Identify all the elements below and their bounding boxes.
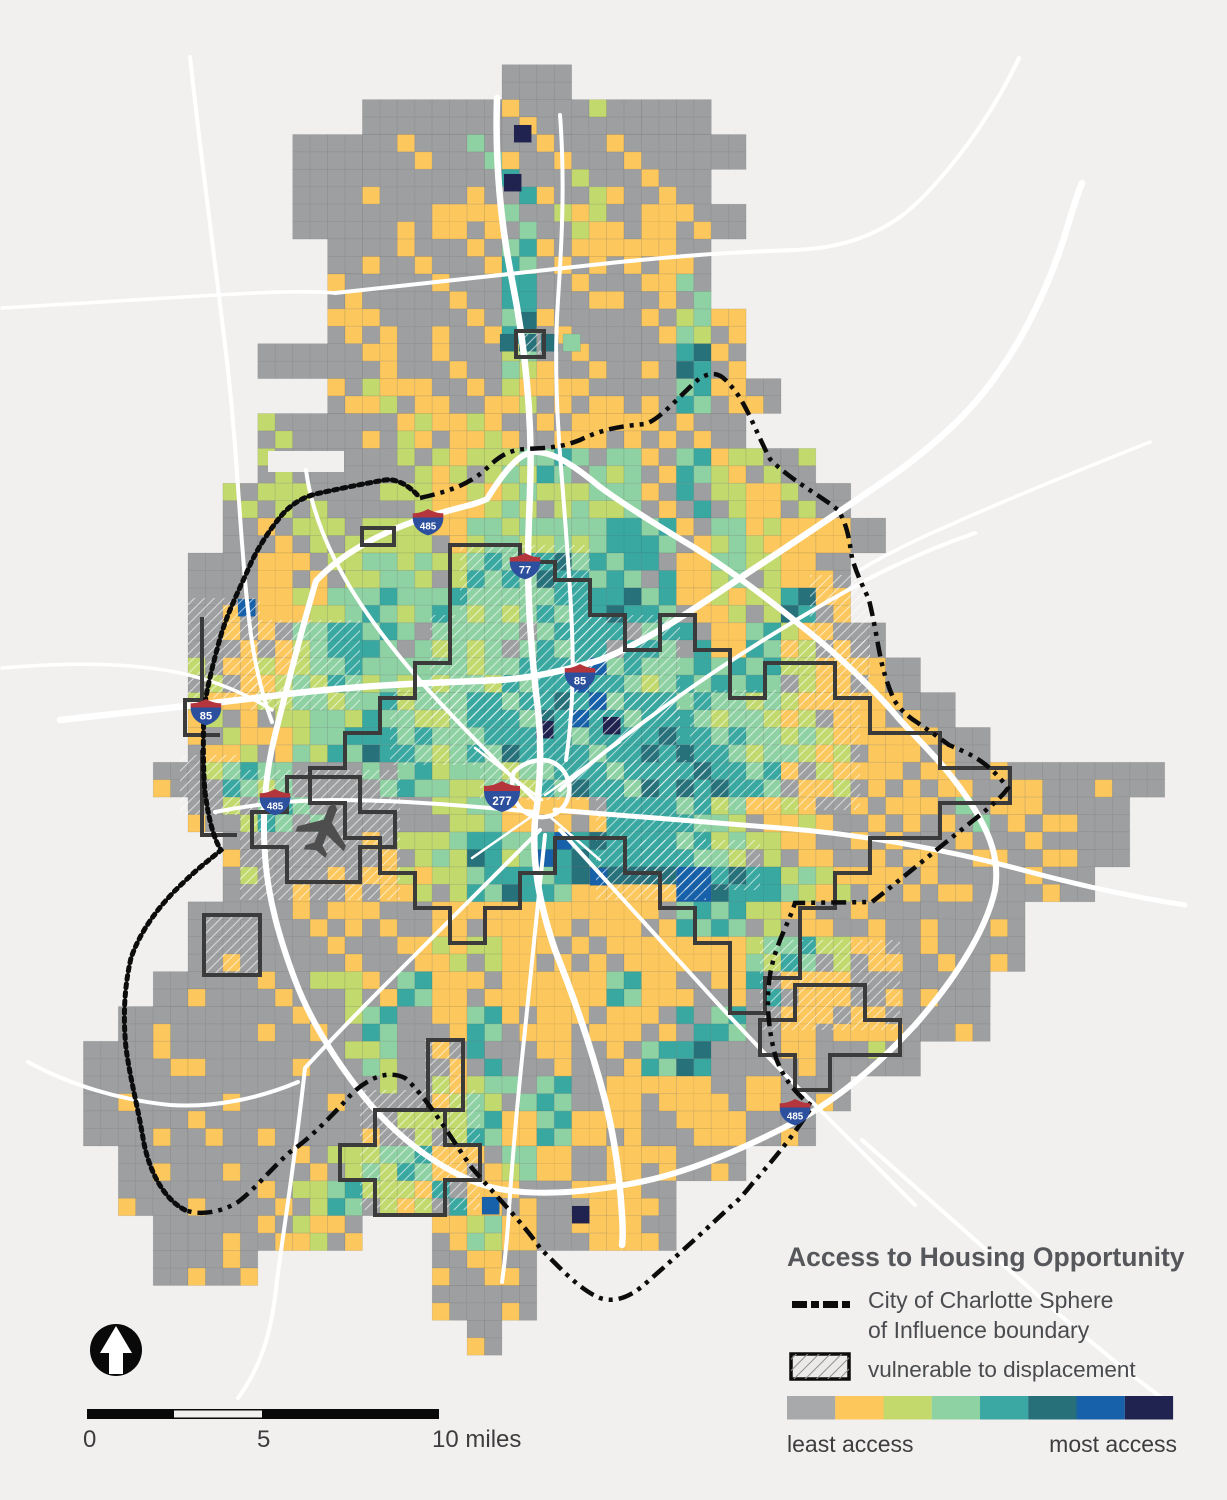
svg-text:277: 277 — [492, 796, 511, 808]
svg-text:5: 5 — [257, 1426, 270, 1453]
svg-text:10 miles: 10 miles — [432, 1426, 521, 1453]
svg-text:77: 77 — [519, 564, 531, 576]
svg-text:485: 485 — [420, 521, 437, 532]
svg-text:85: 85 — [574, 675, 586, 687]
svg-text:Access to Housing Opportunity: Access to Housing Opportunity — [787, 1242, 1185, 1272]
svg-text:85: 85 — [200, 710, 212, 722]
svg-text:485: 485 — [787, 1111, 804, 1122]
svg-text:least access: least access — [787, 1431, 914, 1457]
svg-text:of Influence boundary: of Influence boundary — [868, 1317, 1090, 1343]
svg-text:City of Charlotte Sphere: City of Charlotte Sphere — [868, 1287, 1113, 1313]
svg-text:485: 485 — [267, 801, 284, 812]
svg-text:vulnerable to displacement: vulnerable to displacement — [868, 1357, 1136, 1382]
svg-text:0: 0 — [83, 1426, 96, 1453]
svg-text:most access: most access — [1049, 1431, 1177, 1457]
